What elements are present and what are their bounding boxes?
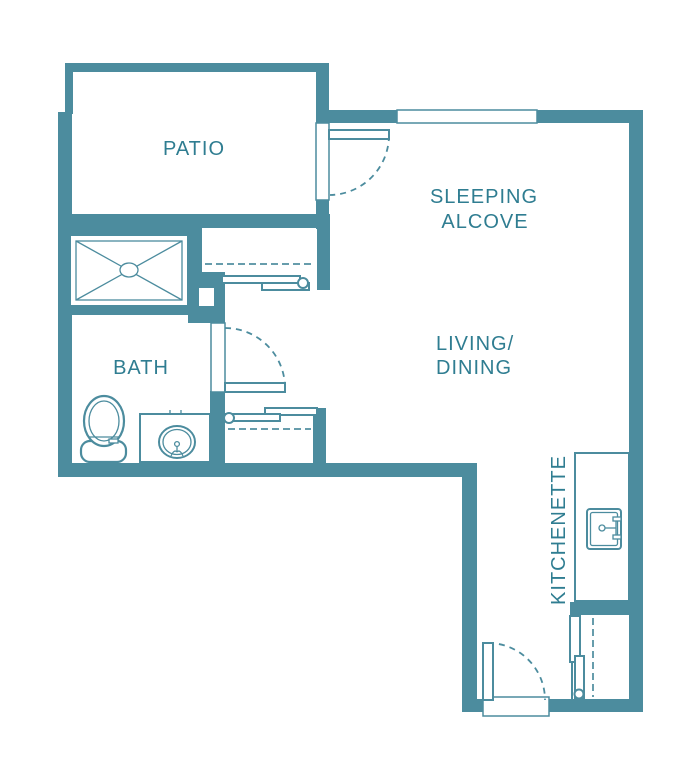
patio-door-swing-arc [330,135,389,195]
patio-top-wall [65,63,322,72]
patio-label: PATIO [163,138,225,160]
toilet [81,396,126,462]
alcove-top-wall-left [316,110,398,123]
vanity [140,410,210,462]
kitchenette-label: KITCHENETTE [548,455,570,605]
bath-door [225,328,285,392]
patio-door-panel [329,130,389,139]
kitchen-faucet-handle-top [613,517,621,521]
patio-door-opening [316,123,329,200]
kitchen-sink-drain [599,525,605,531]
vanity-faucet [175,442,180,447]
closet-upper-pull [298,278,308,288]
bath-bottom-wall [58,463,477,477]
living-dining-label-line2: DINING [436,357,512,379]
window [397,110,537,123]
room-labels: PATIO SLEEPING ALCOVE LIVING/ DINING BAT… [113,138,570,605]
alcove-top-wall-right [537,110,643,123]
entry-door [483,643,545,700]
closet-lower [224,408,317,429]
patio-door [329,130,389,195]
wall-niche [199,288,214,306]
living-dining-label-line1: LIVING/ [436,333,514,355]
patio-bottom-wall [58,214,330,228]
right-outer-wall [629,110,643,712]
walls [58,63,643,712]
entry-door-panel [483,643,493,700]
kitchenette-area [575,453,629,601]
kitchen-faucet-handle-bottom [613,535,621,539]
pantry-pull [575,690,584,699]
closet-lower-right-wall [313,408,326,463]
shower [70,235,188,306]
closet-upper-slider-left [222,276,300,283]
toilet-flush-button [109,439,118,443]
kitchenette-bottom-wall [570,602,643,615]
entry-door-swing-arc [488,643,545,700]
closet-lower-pull [224,413,234,423]
shower-drain [120,263,138,277]
pantry-closet [570,615,593,699]
bath-door-panel [225,383,285,392]
bath-door-wall [210,391,225,463]
closet-upper-right-wall [317,228,330,290]
sleeping-alcove-label-line1: SLEEPING [430,186,538,208]
entry-left-wall [462,463,477,712]
sleeping-alcove-label-line2: ALCOVE [441,211,528,233]
floor-plan: PATIO SLEEPING ALCOVE LIVING/ DINING BAT… [0,0,700,780]
patio-left-wall [65,63,73,114]
bath-door-swing-arc [225,328,285,388]
bath-door-opening [211,323,225,392]
bath-label: BATH [113,357,169,379]
